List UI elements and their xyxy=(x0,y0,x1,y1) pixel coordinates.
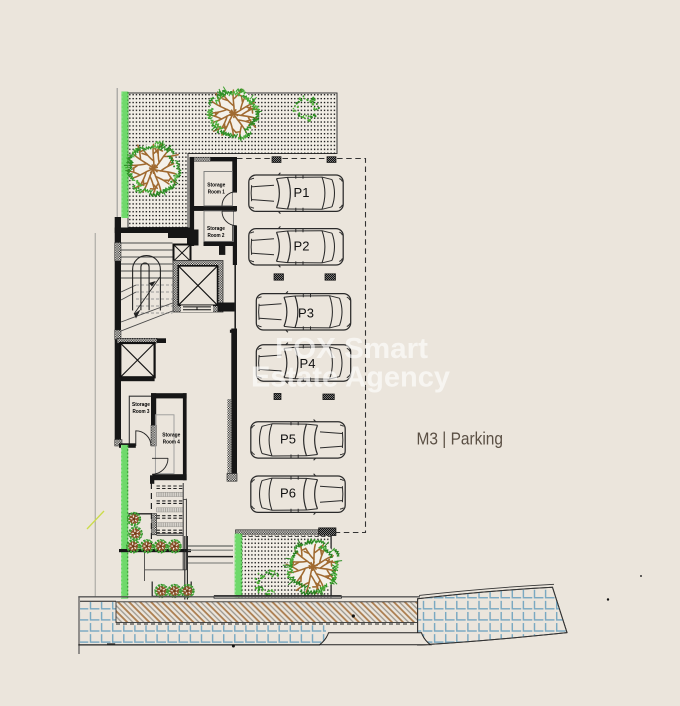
svg-text:P1: P1 xyxy=(294,185,310,200)
svg-text:FOX Smart: FOX Smart xyxy=(275,333,429,365)
svg-text:P5: P5 xyxy=(280,432,296,447)
svg-text:Storage: Storage xyxy=(132,402,151,408)
svg-text:P3: P3 xyxy=(298,305,314,320)
svg-text:Room 2: Room 2 xyxy=(208,233,225,239)
svg-text:M3 | Parking: M3 | Parking xyxy=(417,428,504,448)
svg-text:Estate Agency: Estate Agency xyxy=(251,362,450,394)
svg-text:Room 3: Room 3 xyxy=(133,409,151,415)
svg-text:Storage: Storage xyxy=(207,226,226,232)
svg-text:P6: P6 xyxy=(280,485,296,500)
svg-text:Storage: Storage xyxy=(162,433,181,439)
svg-text:P2: P2 xyxy=(294,238,310,253)
svg-text:Storage: Storage xyxy=(207,182,226,188)
svg-text:Room 4: Room 4 xyxy=(163,440,181,446)
svg-text:Room 1: Room 1 xyxy=(208,189,226,195)
